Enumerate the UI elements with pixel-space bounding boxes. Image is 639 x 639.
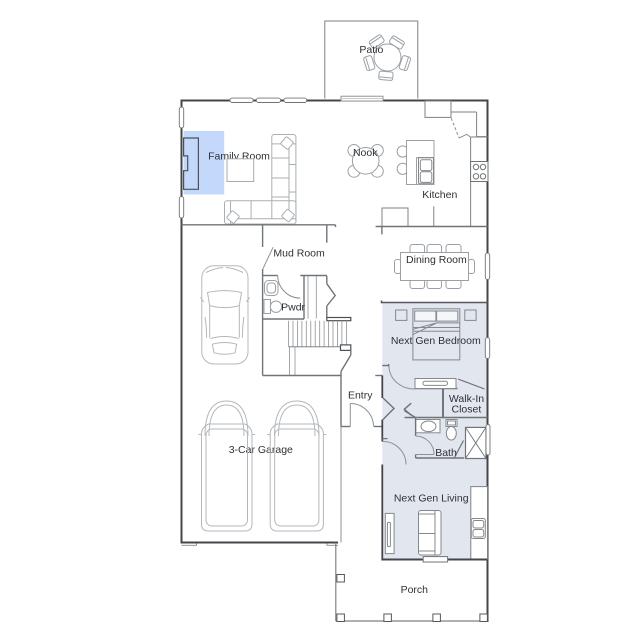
svg-text:3-Car Garage: 3-Car Garage	[229, 444, 293, 456]
svg-text:Kitchen: Kitchen	[422, 189, 457, 201]
svg-text:Mud Room: Mud Room	[273, 248, 325, 260]
svg-text:Porch: Porch	[401, 584, 429, 596]
svg-text:Next Gen Bedroom: Next Gen Bedroom	[391, 335, 481, 347]
svg-text:Bath: Bath	[435, 447, 457, 459]
svg-text:Nook: Nook	[353, 147, 378, 159]
svg-text:Next Gen Living: Next Gen Living	[394, 493, 469, 505]
svg-text:Closet: Closet	[452, 404, 482, 416]
svg-text:Patio: Patio	[359, 44, 383, 56]
svg-text:Dining Room: Dining Room	[406, 254, 467, 266]
svg-text:Entry: Entry	[348, 390, 373, 402]
svg-text:Pwdr: Pwdr	[281, 301, 305, 313]
